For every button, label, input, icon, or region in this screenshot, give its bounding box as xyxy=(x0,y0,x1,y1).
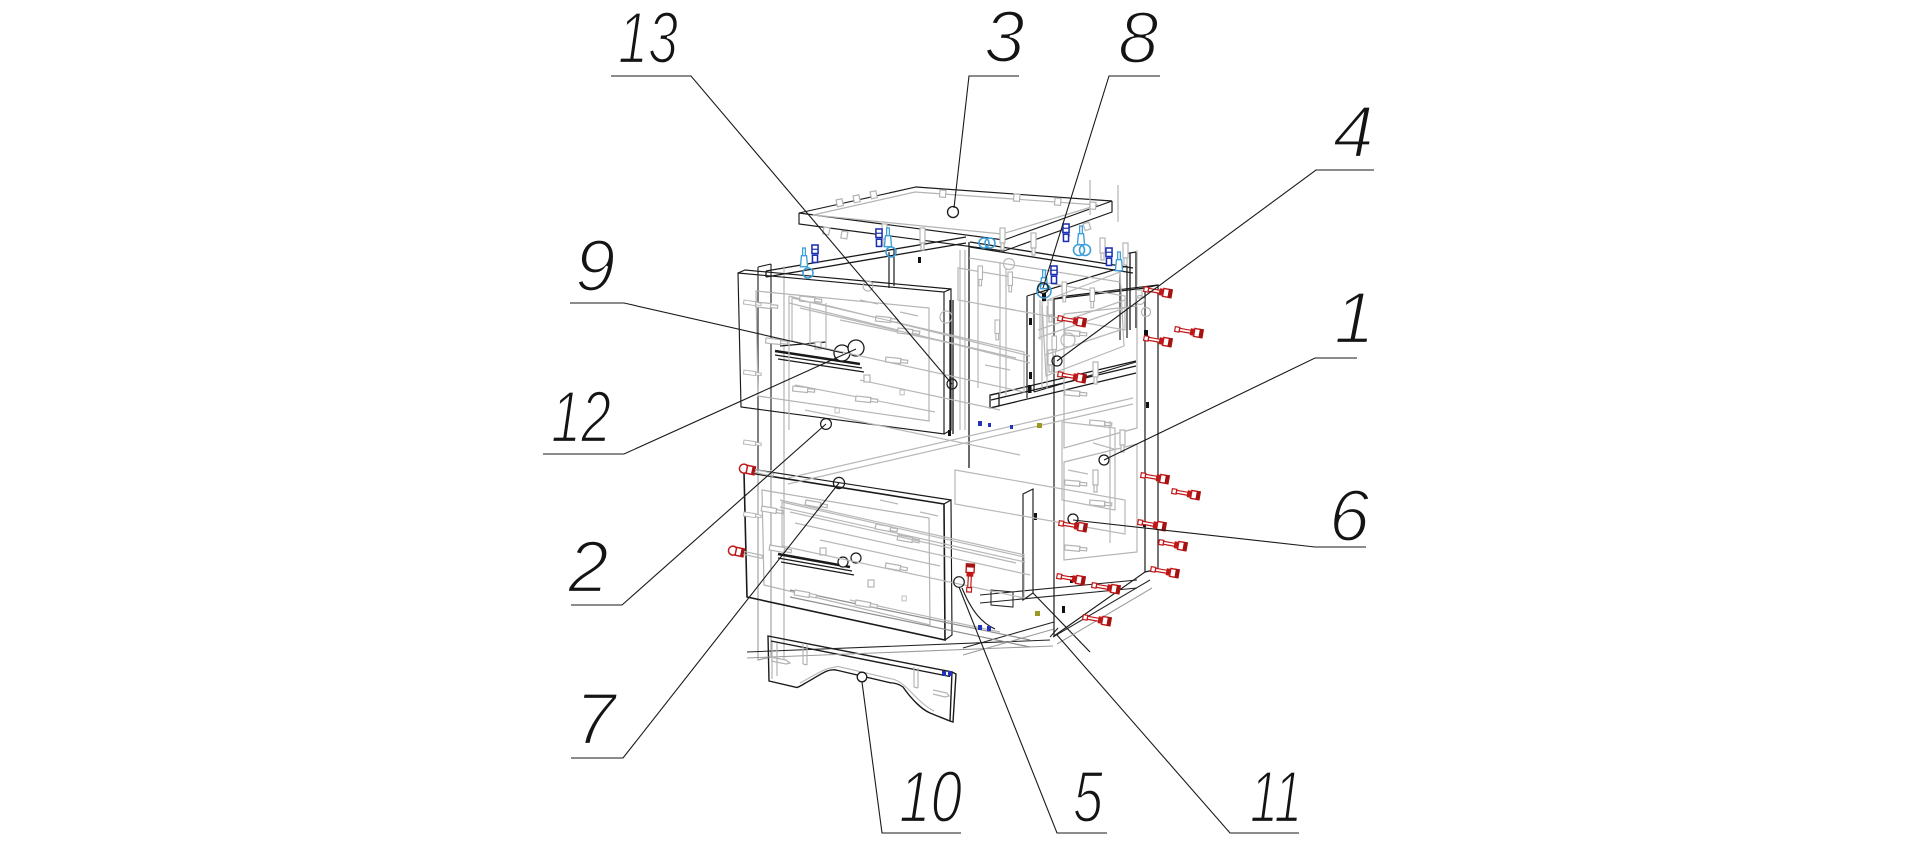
svg-text:9: 9 xyxy=(575,226,616,307)
svg-text:8: 8 xyxy=(1118,0,1159,79)
svg-text:7: 7 xyxy=(575,679,618,760)
svg-text:6: 6 xyxy=(1329,476,1370,557)
svg-text:10: 10 xyxy=(899,757,962,838)
svg-text:5: 5 xyxy=(1073,757,1103,838)
svg-text:4: 4 xyxy=(1333,92,1374,173)
svg-text:2: 2 xyxy=(567,527,609,608)
svg-text:1: 1 xyxy=(1334,278,1375,359)
svg-text:13: 13 xyxy=(618,0,678,79)
svg-text:3: 3 xyxy=(984,0,1025,78)
svg-text:12: 12 xyxy=(551,377,611,458)
svg-text:11: 11 xyxy=(1250,757,1302,838)
